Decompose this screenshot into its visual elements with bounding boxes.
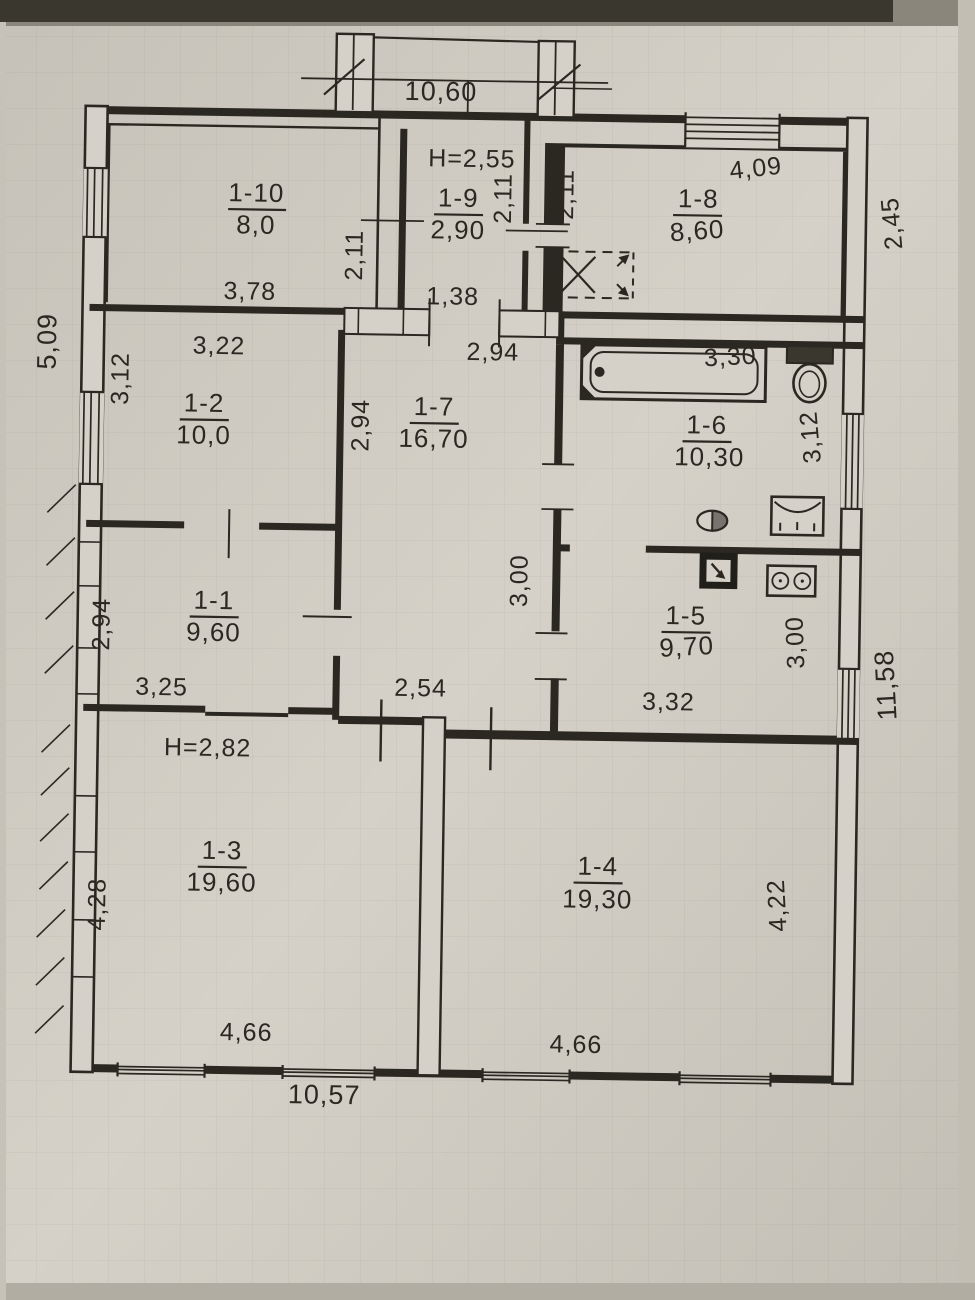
dim: 2,94	[87, 598, 116, 651]
room-id: 1-3	[202, 835, 243, 866]
window-top-1-8	[685, 112, 780, 148]
dim: 2,54	[394, 674, 447, 703]
dim-overall-bottom: 10,57	[288, 1079, 361, 1110]
washbasin-icon	[771, 497, 824, 536]
height-note: H=2,82	[164, 733, 252, 762]
dim: 4,66	[549, 1030, 602, 1059]
room-id: 1-8	[678, 183, 719, 214]
dim: 2,94	[346, 399, 375, 452]
dim: 1,38	[426, 282, 479, 311]
dim: 4,66	[220, 1018, 273, 1047]
paper-background	[0, 0, 975, 1300]
boiler-icon	[699, 553, 738, 590]
floor-plan-drawing: 10,60 10,57 5,09 2,45 11,58 1-10 8,0 3,7…	[0, 0, 975, 1300]
window-left-1-2	[79, 392, 104, 484]
room-id: 1-9	[438, 182, 479, 213]
room-id: 1-6	[686, 409, 727, 440]
dim: 4,28	[83, 878, 112, 931]
window-right-1-5	[837, 669, 860, 739]
dim-right-lower: 11,58	[869, 649, 903, 721]
dim: 3,30	[703, 342, 757, 373]
room-area: 10,0	[176, 419, 231, 450]
room-id: 1-10	[228, 177, 285, 208]
room-id: 1-2	[184, 387, 225, 418]
photo-right-edge	[958, 0, 975, 1300]
room-area: 19,30	[562, 883, 633, 914]
dim: 3,12	[106, 352, 135, 405]
dim: 3,00	[780, 616, 810, 670]
scanned-floor-plan-page: 10,60 10,57 5,09 2,45 11,58 1-10 8,0 3,7…	[0, 0, 975, 1300]
dim: 2,11	[489, 173, 518, 224]
dim: 3,22	[192, 332, 245, 361]
height-note: H=2,55	[428, 144, 516, 173]
dim: 3,32	[642, 688, 695, 717]
room-area: 10,30	[674, 441, 745, 472]
photo-bottom-edge	[0, 1283, 975, 1300]
dim: 2,11	[340, 229, 369, 280]
wall-divider-1-3-1-4	[418, 717, 446, 1075]
dim-right-upper: 2,45	[876, 196, 909, 251]
room-area: 8,0	[236, 209, 276, 240]
window-left-1-10	[83, 168, 108, 237]
dim-overall-top: 10,60	[404, 76, 477, 107]
dim: 3,00	[505, 554, 534, 607]
room-id: 1-4	[577, 851, 618, 882]
dim-overall-left: 5,09	[32, 313, 63, 370]
room-area: 9,70	[659, 630, 715, 663]
window-right-1-6	[840, 414, 863, 509]
room-id: 1-7	[414, 391, 455, 422]
stove-icon	[767, 566, 815, 597]
dim: 4,09	[728, 152, 783, 185]
dim: 2,94	[466, 338, 519, 367]
room-id: 1-5	[665, 600, 706, 631]
room-area: 16,70	[398, 423, 469, 454]
room-id: 1-1	[193, 585, 234, 616]
room-area: 2,90	[430, 214, 485, 245]
dim: 4,22	[762, 878, 793, 932]
room-area: 8,60	[669, 214, 726, 248]
photo-left-edge	[0, 22, 6, 1300]
sink-icon	[697, 510, 727, 530]
room-area: 19,60	[186, 867, 257, 898]
dim: 3,78	[223, 277, 276, 306]
dim: 3,25	[135, 673, 188, 702]
dim: 2,11	[551, 169, 580, 220]
dim: 3,12	[794, 410, 827, 465]
room-area: 9,60	[186, 616, 241, 647]
